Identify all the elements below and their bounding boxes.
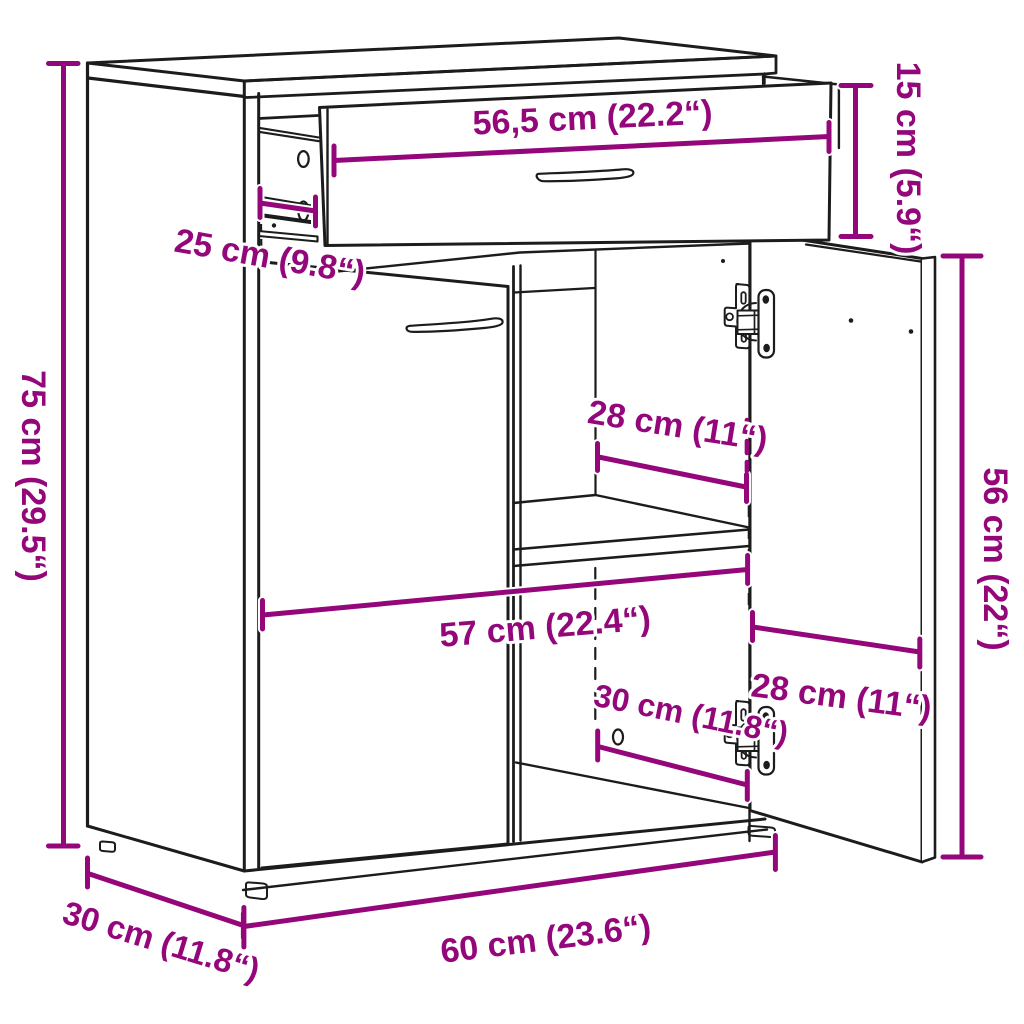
svg-text:75 cm (29.5“): 75 cm (29.5“): [14, 370, 52, 582]
svg-text:56 cm (22“): 56 cm (22“): [976, 467, 1014, 650]
svg-text:15 cm (5.9“): 15 cm (5.9“): [889, 62, 927, 255]
